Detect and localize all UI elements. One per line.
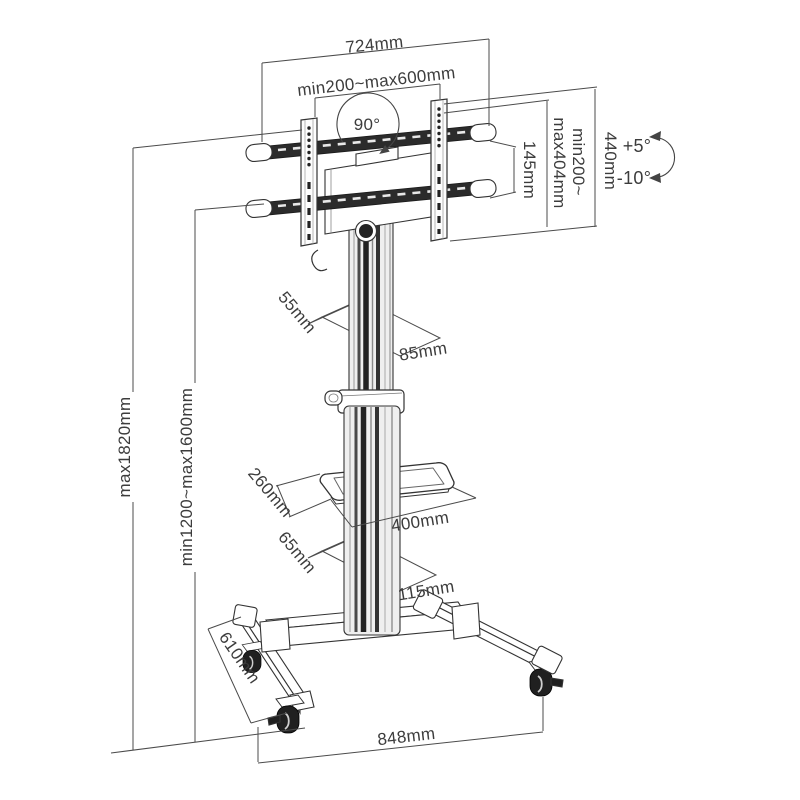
left-vesa-strip <box>301 118 317 246</box>
caster-front-left <box>268 695 304 733</box>
tilt-indicator <box>649 131 675 183</box>
right-vesa-strip <box>431 99 447 241</box>
floor-baseline <box>111 728 305 753</box>
label-vesa-height-2: max404mm <box>550 117 569 208</box>
crossbar-left-riser <box>260 619 290 652</box>
lower-rail-left-cap <box>245 199 273 218</box>
collar-handle-loop <box>325 391 342 405</box>
upper-rail-left-cap <box>245 143 273 162</box>
upper-rail-right-cap <box>469 123 497 142</box>
cable-hook <box>312 250 327 271</box>
label-rotation: 90° <box>354 115 381 134</box>
tv-stand-dimension-diagram: 724mm min200~max600mm 90° 145mm min200~ … <box>0 0 800 800</box>
label-shelf-depth: 260mm <box>244 464 296 521</box>
column-hole <box>359 224 373 238</box>
label-tilt-up: +5° <box>623 136 652 156</box>
inner-column-extrusion-lines <box>354 213 390 401</box>
label-base-width: 848mm <box>376 724 436 749</box>
label-height-range: min1200~max1600mm <box>177 388 196 567</box>
diagram-svg: 724mm min200~max600mm 90° 145mm min200~ … <box>0 0 800 800</box>
label-vesa-height-1: min200~ <box>569 128 588 196</box>
lower-rail-right-cap <box>469 179 497 198</box>
tilt-arc <box>659 138 675 177</box>
label-column-width: 85mm <box>398 338 449 364</box>
label-height-max: max1820mm <box>115 397 134 498</box>
label-top-width: 724mm <box>344 32 404 57</box>
label-tilt-down: -10° <box>617 168 651 188</box>
label-rail-spacing: 145mm <box>520 141 539 199</box>
right-leg-side-face <box>424 600 548 672</box>
left-leg-back-cap <box>232 604 257 628</box>
crossbar-right-riser <box>452 603 480 639</box>
column <box>325 212 404 635</box>
label-column-depth: 55mm <box>274 288 320 337</box>
label-base-column-depth: 65mm <box>274 528 320 577</box>
